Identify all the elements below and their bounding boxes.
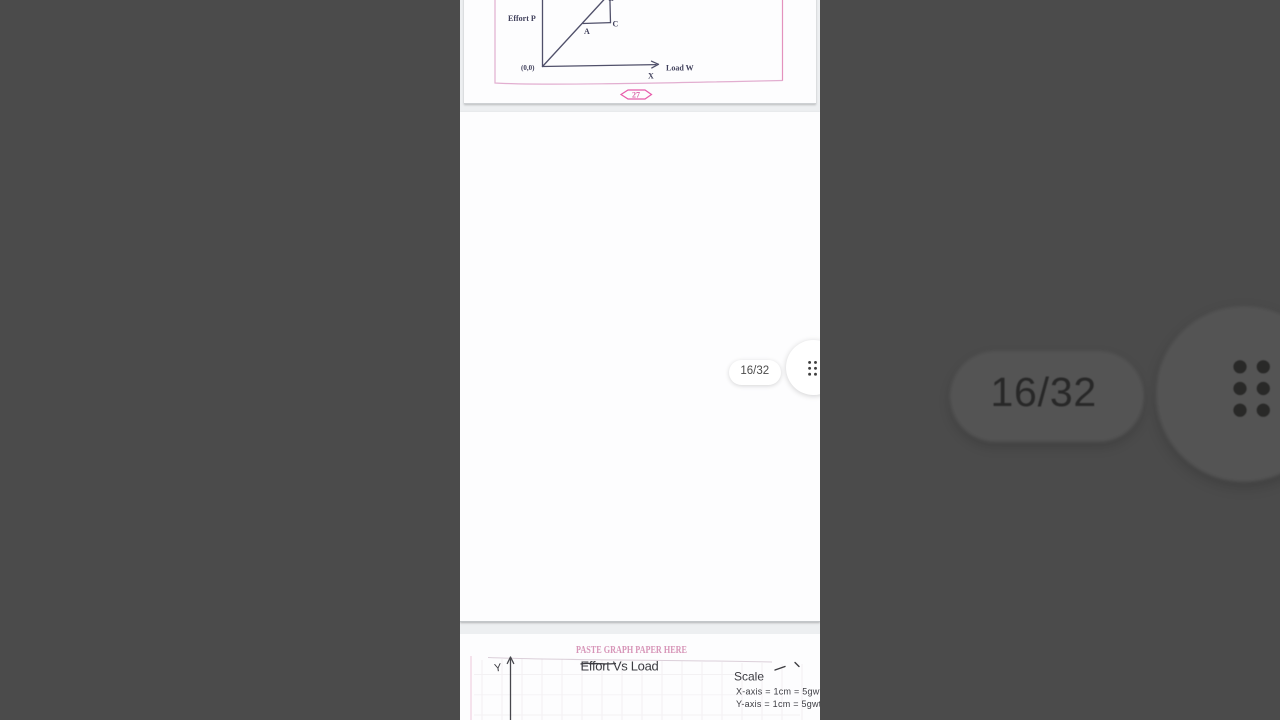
svg-text:Y-axis = 1cm = 5gwt: Y-axis = 1cm = 5gwt	[736, 699, 820, 709]
svg-text:A: A	[584, 27, 590, 36]
svg-text:X: X	[648, 72, 654, 81]
svg-text:C: C	[613, 20, 619, 29]
svg-text:Load W: Load W	[666, 64, 694, 73]
svg-text:X-axis = 1cm = 5gwt: X-axis = 1cm = 5gwt	[736, 687, 820, 697]
svg-text:B: B	[609, 0, 615, 3]
svg-text:27: 27	[632, 91, 640, 100]
svg-text:Effort P: Effort P	[508, 14, 536, 23]
svg-text:Effort Vs Load: Effort Vs Load	[581, 659, 659, 674]
svg-text:PASTE GRAPH PAPER HERE: PASTE GRAPH PAPER HERE	[576, 644, 687, 656]
svg-text:Scale: Scale	[734, 670, 764, 684]
svg-text:(0,0): (0,0)	[521, 64, 535, 72]
